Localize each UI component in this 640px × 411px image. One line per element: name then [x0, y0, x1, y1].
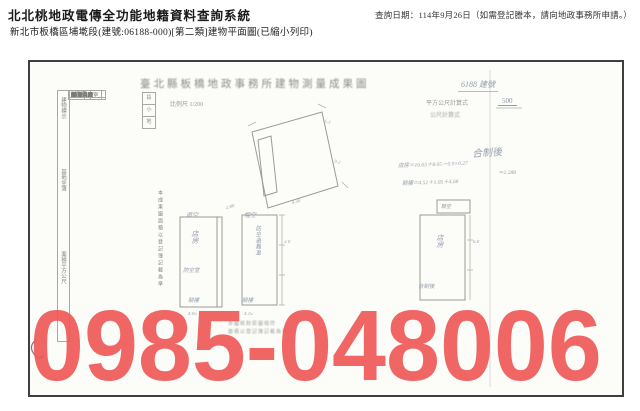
calc-label: 平方公尺計算式 — [426, 98, 468, 107]
group-label: 基地坐落 — [59, 169, 67, 191]
calc-value: 500 — [498, 97, 517, 106]
plan-label: 遊空 — [186, 210, 198, 219]
dimension-label: 6.0 — [473, 240, 479, 245]
group-label: 面積平方公尺 — [59, 251, 67, 284]
plan-label: 店房 — [190, 230, 200, 264]
watermark-phone-number: 0985-048006 — [22, 296, 610, 396]
scale-label: 比例尺 1/200 — [170, 99, 203, 108]
hw-heading: 合制後 — [472, 143, 503, 160]
document-subtitle: 新北市板橋區埔墘段(建號:06188-000)[第二類]建物平面圖(已縮小列印) — [10, 24, 313, 38]
group-label: 建物標示 — [59, 97, 67, 119]
system-title: 北北桃地政電傳全功能地籍資料查詢系統 — [8, 5, 251, 24]
plan-label: 騎空 — [441, 203, 451, 210]
hw-calc-line: ＝2.288 — [498, 168, 516, 176]
doc-title: 臺北縣板橋地政事務所建物測量成果圖 — [140, 76, 440, 91]
plan-label: 合制後 — [418, 282, 435, 290]
dimension-label: 3.0 — [284, 240, 290, 245]
plan-label: 防空室 — [183, 266, 200, 274]
query-date: 查詢日期：114年9月26日（如需登記謄本，請向地政事務所申請。） — [375, 9, 632, 21]
plan-label: 店房 — [435, 234, 445, 268]
building-number-note: 6188 建號 — [458, 79, 498, 92]
plan-label: 埕空 — [244, 210, 256, 219]
calc-secondary-label: 公尺計算式 — [430, 110, 460, 119]
